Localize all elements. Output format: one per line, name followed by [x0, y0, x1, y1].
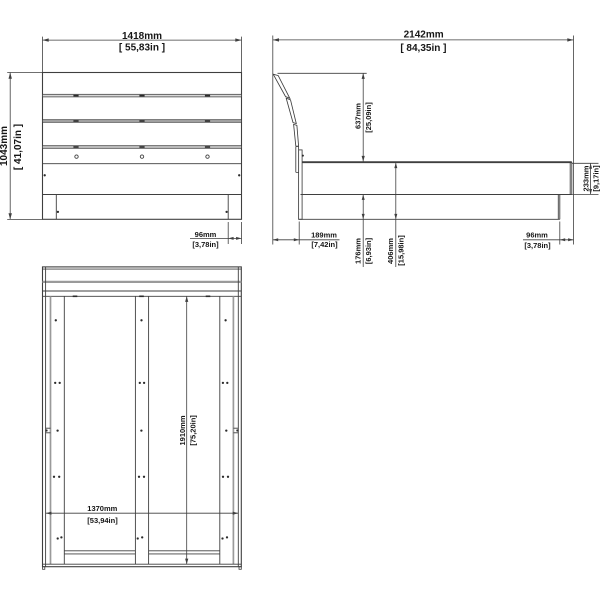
svg-text:1910mm: 1910mm: [178, 415, 187, 445]
svg-text:[9,17in]: [9,17in]: [591, 165, 600, 192]
svg-text:[6,93in]: [6,93in]: [364, 237, 373, 264]
svg-text:233mm: 233mm: [581, 165, 590, 191]
svg-text:176mm: 176mm: [354, 238, 363, 264]
svg-text:[25,09in]: [25,09in]: [364, 102, 373, 133]
svg-text:[53,94in]: [53,94in]: [87, 516, 118, 525]
svg-text:2142mm: 2142mm: [404, 29, 444, 40]
svg-text:[ 41,07in ]: [ 41,07in ]: [13, 124, 24, 170]
svg-text:1043mm: 1043mm: [0, 126, 10, 166]
svg-text:[75,20in]: [75,20in]: [188, 415, 197, 446]
svg-text:1370mm: 1370mm: [87, 504, 117, 513]
svg-text:[ 55,83in ]: [ 55,83in ]: [119, 42, 165, 53]
svg-text:96mm: 96mm: [526, 230, 548, 239]
svg-text:96mm: 96mm: [195, 230, 217, 239]
svg-text:[3,78in]: [3,78in]: [192, 240, 219, 249]
svg-text:189mm: 189mm: [311, 230, 337, 239]
svg-text:[7,42in]: [7,42in]: [311, 240, 338, 249]
svg-text:[15,98in]: [15,98in]: [397, 235, 406, 266]
svg-text:[ 84,35in ]: [ 84,35in ]: [400, 43, 446, 54]
svg-text:1418mm: 1418mm: [122, 31, 162, 42]
svg-text:406mm: 406mm: [386, 238, 395, 264]
svg-text:[3,78in]: [3,78in]: [524, 241, 551, 250]
svg-text:637mm: 637mm: [354, 103, 363, 129]
